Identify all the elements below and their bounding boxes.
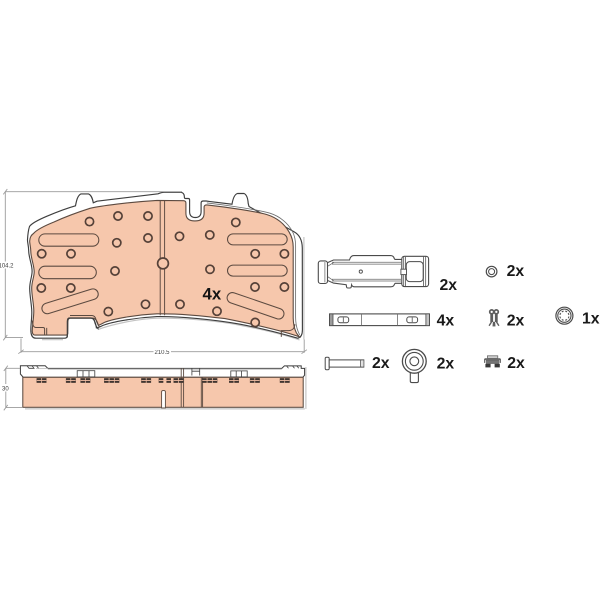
svg-text:30: 30 [2,386,9,392]
svg-text:2x: 2x [507,312,525,329]
svg-text:4x: 4x [203,285,222,304]
svg-text:210.5: 210.5 [155,350,171,356]
svg-text:104.2: 104.2 [0,263,14,269]
svg-text:4x: 4x [437,312,455,329]
svg-text:2x: 2x [507,355,525,372]
svg-text:1x: 1x [582,311,600,328]
svg-text:2x: 2x [437,355,455,372]
svg-text:2x: 2x [507,263,525,280]
svg-text:2x: 2x [440,277,458,294]
svg-text:2x: 2x [372,355,390,372]
